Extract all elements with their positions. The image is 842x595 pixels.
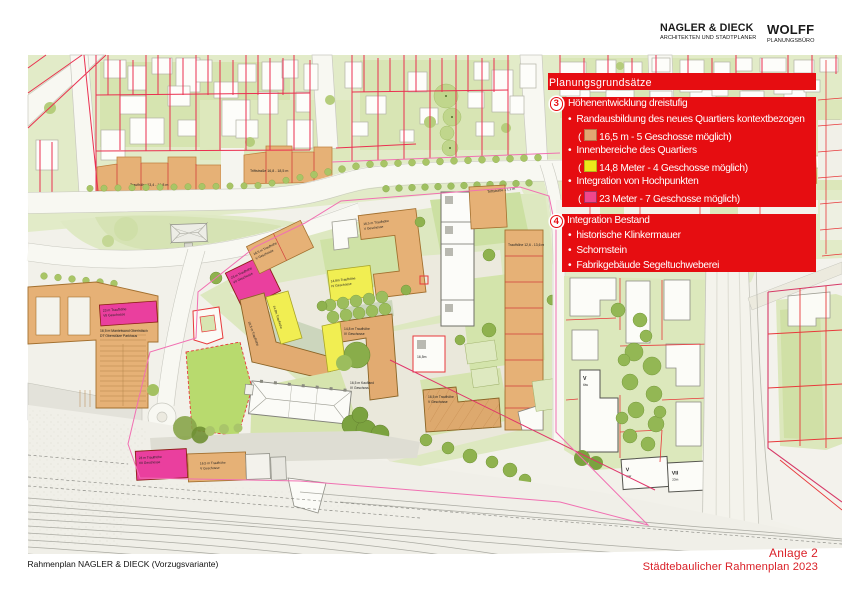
svg-text:16,5 m Kaufland: 16,5 m Kaufland — [350, 381, 374, 385]
svg-text:23m: 23m — [672, 477, 679, 481]
svg-text:Traufhöhe 12,6 - 13,6 m: Traufhöhe 12,6 - 13,6 m — [508, 243, 544, 247]
svg-text:14,8 m Traufhöhe: 14,8 m Traufhöhe — [344, 327, 370, 331]
svg-text:tüw: tüw — [583, 383, 589, 387]
svg-text:V Geschosse: V Geschosse — [200, 466, 220, 471]
svg-text:V Geschosse: V Geschosse — [428, 400, 448, 404]
svg-text:IV Geschosse: IV Geschosse — [344, 332, 365, 336]
svg-text:V: V — [583, 376, 587, 382]
svg-text:16,5 m Traufhöhe: 16,5 m Traufhöhe — [428, 395, 454, 399]
svg-text:IV Geschoss: IV Geschoss — [350, 386, 369, 390]
svg-text:VII: VII — [672, 470, 679, 476]
svg-text:16,5m: 16,5m — [417, 355, 427, 359]
svg-text:DT Oberstütze Parkhaus: DT Oberstütze Parkhaus — [100, 334, 138, 338]
svg-text:16,5 m Mantelwand Oberirdisch: 16,5 m Mantelwand Oberirdisch — [100, 329, 148, 333]
svg-text:Triftstraße 16,8 - 18,5 m: Triftstraße 16,8 - 18,5 m — [250, 169, 288, 173]
